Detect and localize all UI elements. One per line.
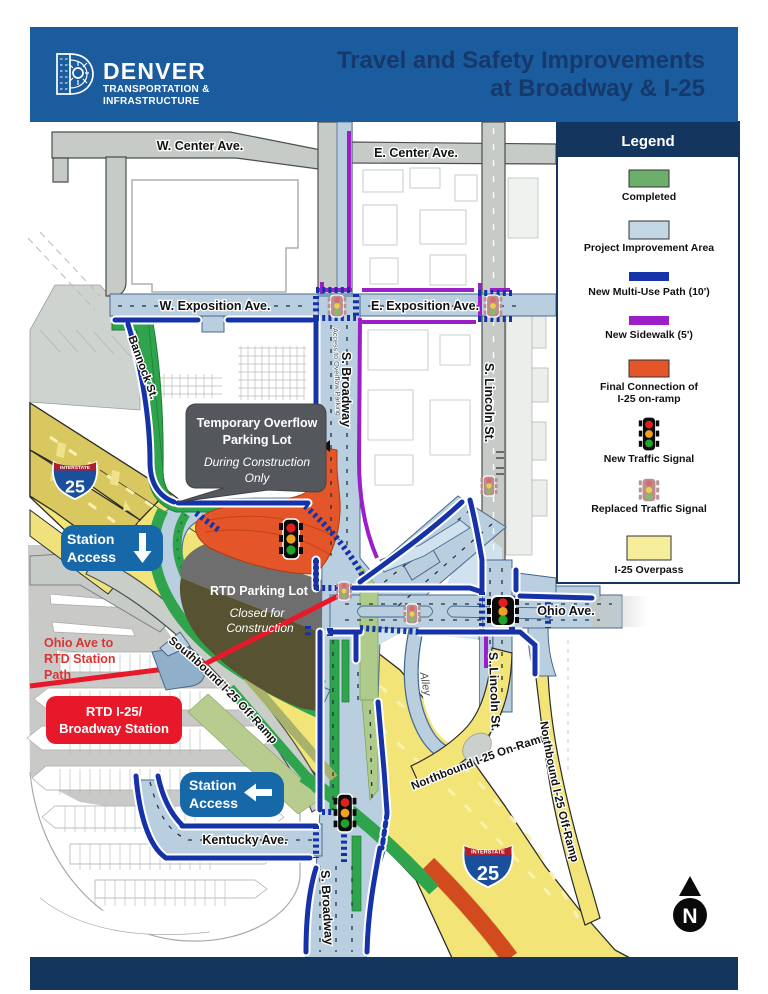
svg-text:E. Center Ave.: E. Center Ave. bbox=[374, 146, 458, 160]
svg-text:INFRASTRUCTURE: INFRASTRUCTURE bbox=[103, 96, 199, 107]
svg-text:Station: Station bbox=[189, 777, 236, 793]
svg-text:New Traffic Signal: New Traffic Signal bbox=[604, 453, 695, 465]
svg-text:Legend: Legend bbox=[621, 133, 674, 150]
svg-text:RTD Station: RTD Station bbox=[44, 652, 116, 666]
svg-text:E. Exposition Ave.: E. Exposition Ave. bbox=[371, 299, 479, 313]
svg-text:Access: Access bbox=[189, 795, 238, 811]
svg-text:Path: Path bbox=[44, 668, 71, 682]
svg-text:I-25 on-ramp: I-25 on-ramp bbox=[617, 393, 680, 405]
svg-text:at Broadway & I-25: at Broadway & I-25 bbox=[490, 75, 705, 102]
svg-text:Travel and Safety Improvements: Travel and Safety Improvements bbox=[337, 47, 705, 74]
svg-text:I-25 Overpass: I-25 Overpass bbox=[615, 564, 684, 576]
svg-text:Final Connection of: Final Connection of bbox=[600, 381, 698, 393]
svg-text:S. Lincoln St.: S. Lincoln St. bbox=[486, 652, 503, 732]
svg-text:Kentucky Ave.: Kentucky Ave. bbox=[202, 833, 287, 847]
svg-text:Replaced Traffic Signal: Replaced Traffic Signal bbox=[591, 503, 707, 515]
svg-text:RTD I-25/: RTD I-25/ bbox=[86, 704, 143, 719]
svg-text:Only: Only bbox=[245, 471, 271, 485]
svg-text:W. Exposition Ave.: W. Exposition Ave. bbox=[160, 299, 271, 313]
svg-text:Access: Access bbox=[67, 549, 116, 565]
svg-text:TRANSPORTATION &: TRANSPORTATION & bbox=[103, 84, 210, 95]
svg-text:New Multi-Use Path (10'): New Multi-Use Path (10') bbox=[588, 286, 710, 298]
svg-text:Closed for: Closed for bbox=[230, 606, 286, 620]
svg-text:Construction: Construction bbox=[226, 621, 294, 635]
svg-text:DENVER: DENVER bbox=[103, 58, 206, 84]
svg-text:During Construction: During Construction bbox=[204, 455, 310, 469]
svg-text:Broadway Station: Broadway Station bbox=[59, 721, 169, 736]
svg-text:N: N bbox=[682, 905, 697, 928]
svg-text:New Sidewalk (5'): New Sidewalk (5') bbox=[605, 329, 693, 341]
svg-text:Project Improvement Area: Project Improvement Area bbox=[584, 242, 714, 254]
svg-text:Ohio Ave.: Ohio Ave. bbox=[537, 604, 594, 618]
svg-text:W. Center Ave.: W. Center Ave. bbox=[157, 139, 244, 153]
svg-text:Parking Lot: Parking Lot bbox=[223, 433, 293, 447]
svg-text:Station: Station bbox=[67, 531, 114, 547]
svg-text:Completed: Completed bbox=[622, 191, 676, 203]
svg-text:Ohio Ave to: Ohio Ave to bbox=[44, 636, 114, 650]
svg-text:Temporary Overflow: Temporary Overflow bbox=[197, 416, 318, 430]
svg-text:RTD Parking Lot: RTD Parking Lot bbox=[210, 584, 309, 598]
svg-text:S. Lincoln St.: S. Lincoln St. bbox=[482, 363, 496, 442]
